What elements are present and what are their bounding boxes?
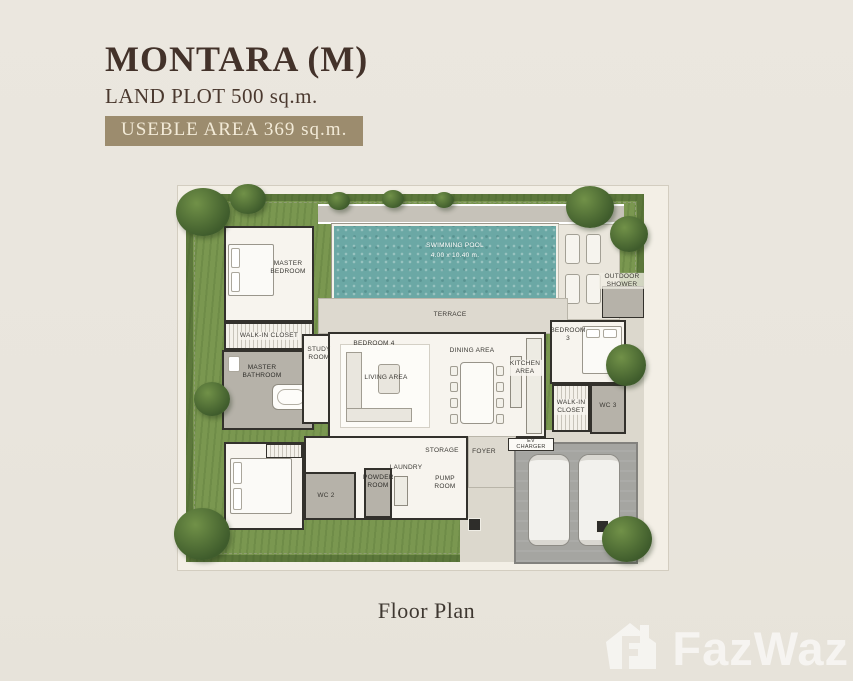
chair-icon xyxy=(496,366,504,376)
pillow-icon xyxy=(233,462,242,484)
tree-icon xyxy=(194,382,230,416)
tree-icon xyxy=(434,192,454,208)
wc-3-label: WC 3 xyxy=(599,402,616,410)
chair-icon xyxy=(450,398,458,408)
chair-icon xyxy=(496,382,504,392)
outdoor-shower xyxy=(602,286,644,318)
chair-icon xyxy=(496,414,504,424)
pillow-icon xyxy=(233,488,242,510)
pillow-icon xyxy=(231,272,240,292)
ev-charger-label: EV CHARGER xyxy=(516,438,545,452)
tree-icon xyxy=(328,192,350,210)
chair-icon xyxy=(450,414,458,424)
sofa-icon xyxy=(346,352,362,414)
chair-icon xyxy=(450,382,458,392)
tree-icon xyxy=(606,344,646,386)
chair-icon xyxy=(450,366,458,376)
header: MONTARA (M) LAND PLOT 500 sq.m. xyxy=(105,38,368,109)
tree-icon xyxy=(174,508,230,560)
kitchen-counter xyxy=(526,338,542,434)
chair-icon xyxy=(496,398,504,408)
dining-table-icon xyxy=(460,362,494,424)
fazwaz-logo-text: FazWaz xyxy=(672,621,849,676)
tree-icon xyxy=(382,190,404,208)
storage-label: STORAGE xyxy=(425,447,458,455)
kitchen-area-label: KITCHEN AREA xyxy=(507,360,543,376)
tree-icon xyxy=(602,516,652,562)
pump-room-label: PUMP ROOM xyxy=(430,475,460,491)
bedroom-2-closet xyxy=(266,444,302,458)
wc-2-label: WC 2 xyxy=(317,492,334,500)
pool-size-label: 4.00 x 10.40 m. xyxy=(420,252,490,260)
walk-in-closet-2-label: WALK-IN CLOSET xyxy=(554,399,588,415)
washer-icon xyxy=(394,476,408,506)
useble-area-badge: USEBLE AREA 369 sq.m. xyxy=(105,116,363,146)
land-plot-subtitle: LAND PLOT 500 sq.m. xyxy=(105,84,368,109)
pillow-icon xyxy=(231,248,240,268)
living-area-label: LIVING AREA xyxy=(361,374,411,382)
lounger-icon xyxy=(565,234,580,264)
walk-in-closet-label: WALK-IN CLOSET xyxy=(239,332,299,340)
powder-room-label: POWDER ROOM xyxy=(363,474,393,490)
tree-icon xyxy=(566,186,614,228)
master-bedroom-label: MASTER BEDROOM xyxy=(266,260,310,276)
pillow-icon xyxy=(603,329,617,338)
page-title: MONTARA (M) xyxy=(105,38,368,80)
bedroom-4-label: BEDROOM 4 xyxy=(349,340,399,348)
sofa-icon xyxy=(346,408,412,422)
study-room-label: STUDY ROOM xyxy=(304,346,334,362)
tree-icon xyxy=(230,184,266,214)
outdoor-shower-label: OUTDOOR SHOWER xyxy=(599,273,645,289)
floor-plan: SWIMMING POOL 4.00 x 10.40 m. OUTDOOR SH… xyxy=(178,186,668,570)
bedroom-3-label: BEDROOM 3 xyxy=(550,327,586,343)
dining-area-label: DINING AREA xyxy=(447,347,497,355)
lounger-icon xyxy=(586,234,601,264)
laundry-label: LAUNDRY xyxy=(390,464,423,472)
pool-label: SWIMMING POOL xyxy=(420,242,490,250)
tree-icon xyxy=(176,188,230,236)
fazwaz-house-icon xyxy=(600,618,662,679)
tree-icon xyxy=(610,216,648,252)
terrace-label: TERRACE xyxy=(434,311,467,319)
car-icon xyxy=(528,454,570,546)
pillow-icon xyxy=(586,329,600,338)
fazwaz-watermark: FazWaz xyxy=(600,618,849,679)
foyer-label: FOYER xyxy=(472,448,496,456)
carport-post xyxy=(468,518,481,531)
master-bathroom-label: MASTER BATHROOM xyxy=(239,364,285,380)
